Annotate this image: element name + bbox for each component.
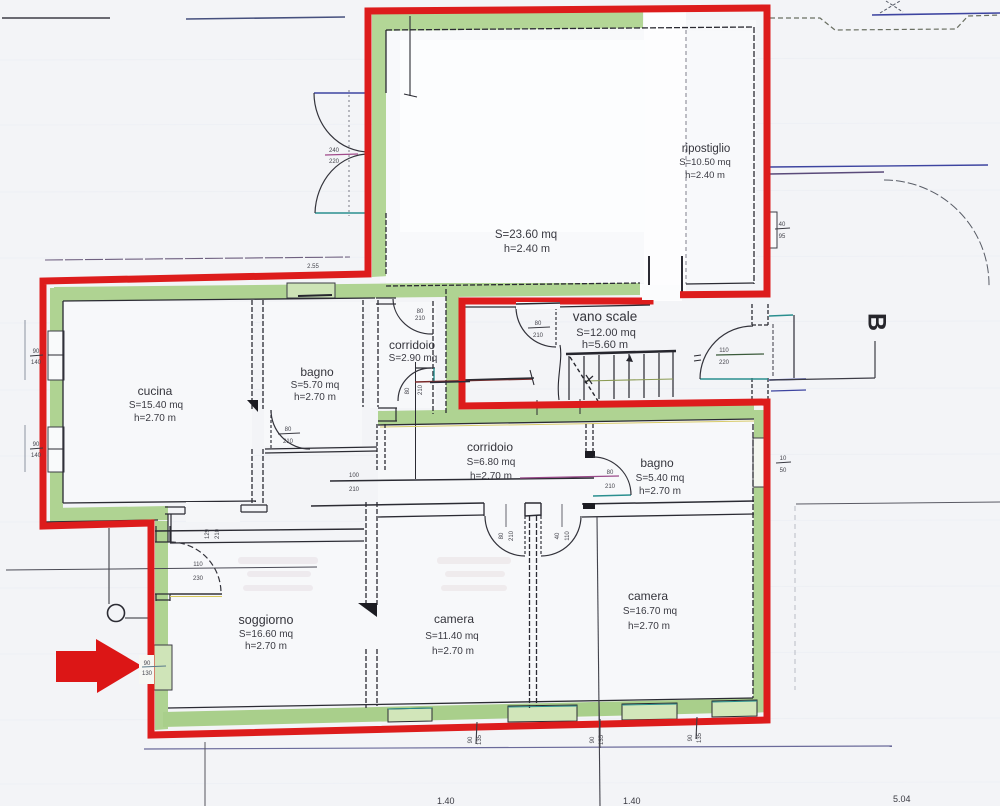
svg-text:camera: camera [434,612,474,626]
svg-text:bagno: bagno [300,365,334,379]
svg-text:h=2.70 m: h=2.70 m [628,621,670,632]
svg-text:210: 210 [283,439,294,445]
svg-text:h=2.70 m: h=2.70 m [245,641,287,652]
svg-text:2.55: 2.55 [307,264,319,270]
svg-text:90: 90 [33,442,40,448]
svg-text:220: 220 [329,159,340,165]
svg-text:S=12.00 mq: S=12.00 mq [576,327,636,339]
svg-text:110: 110 [193,562,203,568]
svg-text:210: 210 [215,528,221,539]
svg-text:129: 129 [205,528,211,539]
svg-text:h=2.70 m: h=2.70 m [294,392,336,403]
svg-text:h=5.60 m: h=5.60 m [582,339,628,351]
svg-text:S=6.80 mq: S=6.80 mq [467,457,516,468]
svg-text:S=2.90 mq: S=2.90 mq [389,353,438,364]
svg-text:80: 80 [285,427,292,433]
svg-text:40: 40 [555,532,561,539]
svg-text:135: 135 [477,734,483,745]
svg-text:80: 80 [535,321,542,327]
svg-text:h=2.70 m: h=2.70 m [134,413,176,424]
svg-text:90: 90 [468,736,474,743]
svg-text:camera: camera [628,589,668,603]
svg-text:240: 240 [329,148,340,154]
svg-text:90: 90 [144,661,151,667]
svg-text:110: 110 [565,531,571,541]
svg-text:h=2.40 m: h=2.40 m [685,170,725,181]
svg-text:95: 95 [779,234,786,240]
svg-text:140: 140 [31,453,42,459]
svg-text:S=16.60 mq: S=16.60 mq [239,629,293,640]
svg-text:80: 80 [499,532,505,539]
svg-text:135: 135 [599,734,605,745]
svg-text:S=10.50 mq: S=10.50 mq [679,157,731,168]
svg-text:140: 140 [31,360,42,366]
svg-text:80: 80 [607,470,614,476]
svg-text:80: 80 [405,387,411,394]
svg-text:h=2.70 m: h=2.70 m [432,646,474,657]
svg-text:S=15.40 mq: S=15.40 mq [129,400,183,411]
svg-text:vano scale: vano scale [573,309,638,324]
svg-text:135: 135 [697,732,703,743]
svg-text:210: 210 [415,316,426,322]
svg-text:h=2.70 m: h=2.70 m [470,471,512,482]
svg-text:1.40: 1.40 [437,796,455,806]
svg-text:S=5.40 mq: S=5.40 mq [636,473,685,484]
svg-text:1.40: 1.40 [623,796,641,806]
svg-text:210: 210 [349,487,360,493]
svg-text:110: 110 [719,348,729,354]
svg-text:90: 90 [688,734,694,741]
svg-text:S=16.70 mq: S=16.70 mq [623,606,677,617]
svg-text:40: 40 [779,222,786,228]
svg-text:210: 210 [605,484,616,490]
svg-text:ripostiglio: ripostiglio [682,143,731,155]
svg-text:cucina: cucina [138,384,173,398]
svg-text:B: B [862,313,890,331]
svg-text:S=11.40 mq: S=11.40 mq [425,631,478,642]
svg-text:corridoio: corridoio [467,440,513,454]
svg-text:210: 210 [509,530,515,541]
svg-text:soggiorno: soggiorno [239,613,294,627]
svg-text:210: 210 [533,333,544,339]
svg-text:h=2.70 m: h=2.70 m [639,486,681,497]
svg-text:h=2.40 m: h=2.40 m [504,243,550,255]
svg-text:corridoio: corridoio [389,338,435,352]
svg-text:130: 130 [142,671,153,677]
svg-text:bagno: bagno [640,456,674,470]
svg-text:10: 10 [780,456,787,462]
svg-text:S=5.70 mq: S=5.70 mq [291,380,340,391]
svg-text:90: 90 [33,349,40,355]
svg-text:5.04: 5.04 [893,794,911,804]
svg-text:100: 100 [349,473,360,479]
svg-text:90: 90 [590,736,596,743]
svg-text:80: 80 [417,309,424,315]
svg-text:50: 50 [780,468,787,474]
svg-text:220: 220 [719,360,730,366]
svg-text:210: 210 [418,384,424,395]
svg-text:230: 230 [193,576,204,582]
svg-text:S=23.60 mq: S=23.60 mq [495,229,557,241]
